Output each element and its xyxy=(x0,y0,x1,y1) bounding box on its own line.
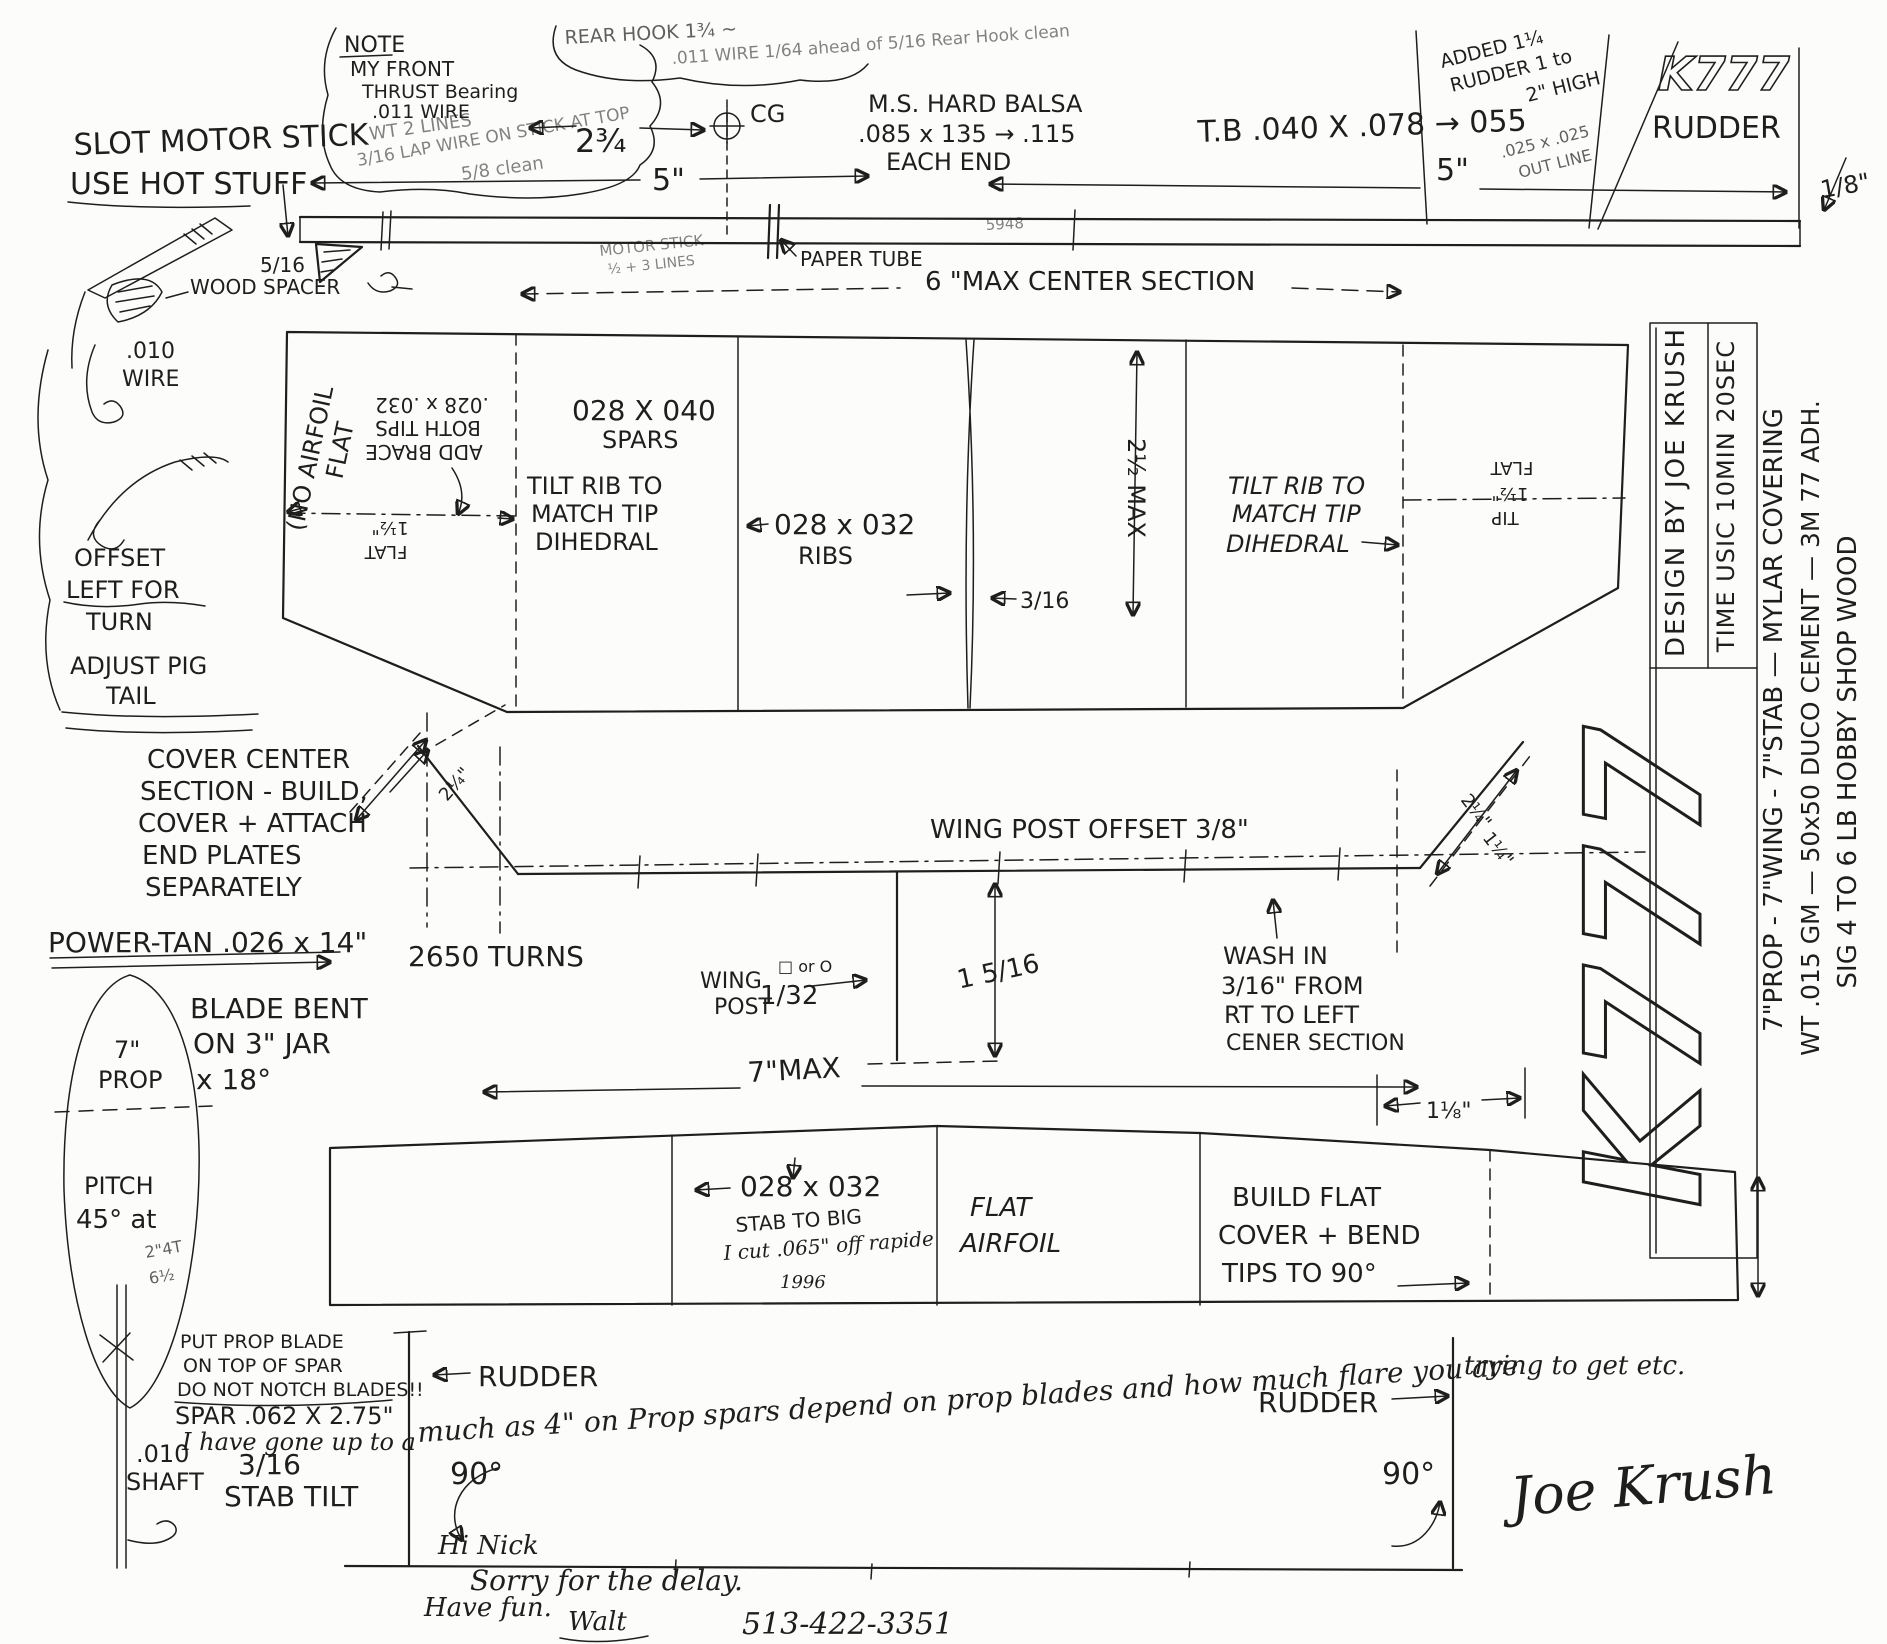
slot-note: SLOT MOTOR STICK xyxy=(73,118,370,163)
ninety-deg-label: 90° xyxy=(450,1457,503,1492)
ribs-arrow xyxy=(748,524,768,526)
footer-greeting: Hi Nick xyxy=(437,1531,539,1561)
dim-5in-right-b xyxy=(1480,189,1786,192)
span-label: 7"MAX xyxy=(747,1051,842,1089)
spars-spec: SPARS xyxy=(602,426,679,454)
max-center-label: 6 "MAX CENTER SECTION xyxy=(925,267,1255,297)
spec-line: WT .015 GM — 50x50 DUCO CEMENT — 3M 77 A… xyxy=(1796,400,1825,1056)
chord-label: 2½ MAX xyxy=(1122,438,1150,538)
ribs-spec: RIBS xyxy=(798,542,853,570)
adjust-underline xyxy=(62,712,258,733)
stick-mark: 5948 xyxy=(985,214,1024,234)
tailboom-spec: T.B .040 X .078 → 055 xyxy=(1196,104,1527,150)
rib-thk-arrow xyxy=(907,593,950,595)
stab-big-note: 1996 xyxy=(780,1272,826,1293)
gap-label: 1⅛" xyxy=(1426,1099,1471,1124)
cover-note: END PLATES xyxy=(142,841,302,871)
rib-thk-arrow xyxy=(992,598,1016,599)
left-tip-upturn xyxy=(418,746,518,874)
tilt-rib-note-right: MATCH TIP xyxy=(1232,500,1361,528)
cg-label: CG xyxy=(750,100,785,128)
note-line: THRUST Bearing xyxy=(361,81,518,103)
cover-arrow xyxy=(390,750,428,792)
spar-spec: SPAR .062 X 2.75" xyxy=(175,1402,394,1430)
dim-5in-right-label: 5" xyxy=(1436,153,1469,188)
tilt-rib-note: DIHEDRAL xyxy=(535,528,658,556)
gap-dim-a xyxy=(1385,1103,1420,1106)
stick-bottom-line xyxy=(300,242,1800,246)
spec-line: SIG 4 TO 6 LB HOBBY SHOP WOOD xyxy=(1833,536,1863,989)
dim-5in-left-b xyxy=(700,176,868,179)
bend-tips-arrow xyxy=(1398,1283,1468,1286)
wash-in-note: RT TO LEFT xyxy=(1224,1001,1359,1029)
plan-drawing: NOTE MY FRONT THRUST Bearing .011 WIRE W… xyxy=(0,0,1887,1644)
flat-airfoil-note: FLAT xyxy=(970,1193,1033,1223)
stab-outline xyxy=(330,1126,1738,1305)
wing-plan-view xyxy=(283,288,1628,712)
spec-line: 7"PROP - 7"WING - 7"STAB — MYLAR COVERIN… xyxy=(1759,408,1789,1032)
margin-squiggle xyxy=(38,350,60,710)
stab-tilt-label: STAB TILT xyxy=(224,1480,359,1513)
rear-hook-note: REAR HOOK 1¾ ~ xyxy=(564,18,738,49)
balsa-spec: M.S. HARD BALSA xyxy=(868,90,1083,118)
add-brace-note: BOTH TIPS xyxy=(375,416,481,440)
add-brace-note: ADD BRACE xyxy=(365,440,483,464)
slot-note: USE HOT STUFF xyxy=(70,167,307,202)
stab-size-spec: 028 x 032 xyxy=(740,1170,881,1203)
blade-note: ON 3" JAR xyxy=(193,1027,331,1060)
blade-note: x 18° xyxy=(196,1063,271,1096)
power-underline-2 xyxy=(52,962,330,968)
flat-airfoil-note: AIRFOIL xyxy=(958,1229,1061,1259)
wash-in-note: CENER SECTION xyxy=(1226,1031,1405,1056)
footer-message: Have fun. xyxy=(423,1593,552,1623)
tilted-rib xyxy=(966,340,974,708)
add-brace-note: .028 x .032 xyxy=(375,393,489,417)
rudder-title: RUDDER xyxy=(1652,111,1781,146)
pitch-note-small: 6½ xyxy=(147,1265,176,1288)
footer-signature: Walt xyxy=(568,1607,627,1637)
wing-post-shape: □ or O xyxy=(778,957,832,976)
max-center-dim-a xyxy=(522,288,900,294)
turns-spec: 2650 TURNS xyxy=(408,940,584,973)
brace-dim-label: 1¼" xyxy=(1478,828,1517,870)
brace-dim-label: 2¼" xyxy=(435,763,475,805)
brace-dim-label: 2¼" xyxy=(1456,790,1495,832)
shaft-spec: SHAFT xyxy=(126,1468,204,1496)
balsa-spec: .085 x 135 → .115 xyxy=(858,120,1076,148)
stab-size-arrow xyxy=(696,1188,730,1190)
ninety-deg-arc-right xyxy=(1392,1502,1440,1546)
sketch-curve xyxy=(72,292,85,368)
paper-tube-label: PAPER TUBE xyxy=(800,247,923,271)
wing-post-arrow xyxy=(812,980,866,986)
plan-sheet: NOTE MY FRONT THRUST Bearing .011 WIRE W… xyxy=(0,0,1887,1644)
cover-note: SECTION - BUILD, xyxy=(140,777,368,807)
build-flat-note: BUILD FLAT xyxy=(1232,1183,1381,1213)
ribs-spec: 028 x 032 xyxy=(774,508,915,541)
wire-label: WIRE xyxy=(122,367,179,392)
pigtail-hook-sketch xyxy=(88,457,228,549)
post-bottom-dash xyxy=(868,1061,1002,1064)
prop-blade-note: DO NOT NOTCH BLADES!! xyxy=(177,1379,424,1401)
post-cap xyxy=(394,1331,426,1333)
wing-post-offset-label: WING POST OFFSET 3/8" xyxy=(930,815,1249,845)
prop-blade-note: PUT PROP BLADE xyxy=(180,1331,344,1353)
note-title: NOTE xyxy=(344,33,405,58)
designer-credit: DESIGN BY JOE KRUSH xyxy=(1661,327,1691,657)
wing-post-label: WING xyxy=(700,969,762,994)
wire-label: .010 xyxy=(126,339,175,364)
cover-leader xyxy=(436,705,505,745)
plan-title: K777 xyxy=(1658,47,1790,101)
stick-top-line xyxy=(300,217,1800,221)
wood-spacer-sketch xyxy=(107,279,162,322)
right-tip-note: TIP xyxy=(1491,507,1519,528)
build-flat-note: TIPS TO 90° xyxy=(1221,1259,1377,1289)
wire-hook-sketch xyxy=(87,345,123,423)
prop-blade-note: ON TOP OF SPAR xyxy=(183,1355,343,1377)
adjust-note: TAIL xyxy=(105,682,156,710)
ninety-deg-label: 90° xyxy=(1382,1457,1435,1492)
tip-arrow xyxy=(498,518,513,519)
balsa-spec: EACH END xyxy=(886,148,1011,176)
cover-note: COVER CENTER xyxy=(147,745,350,775)
build-flat-note: COVER + BEND xyxy=(1218,1221,1421,1251)
tip-flat-dim: 1½" xyxy=(371,517,408,538)
shaft-hook xyxy=(128,1521,176,1543)
pitch-note-small: 2"4T xyxy=(143,1237,183,1262)
prop-shaft xyxy=(117,1285,126,1568)
offset-note: OFFSET xyxy=(74,544,165,572)
pitch-note: PITCH xyxy=(84,1172,154,1200)
gap-dim-b xyxy=(1482,1098,1520,1100)
rib-thickness: 3/16 xyxy=(1020,589,1069,614)
wash-in-note: 3/16" FROM xyxy=(1221,972,1364,1000)
cg-distance: 2¾ xyxy=(575,122,626,160)
right-tip-note: FLAT xyxy=(1490,457,1534,478)
cover-note: COVER + ATTACH xyxy=(138,809,367,839)
rudder-arrow-left xyxy=(434,1373,470,1375)
rudder-arrow-right xyxy=(1392,1396,1448,1399)
blade-note: BLADE BENT xyxy=(190,992,369,1025)
note-line: 5/8 clean xyxy=(460,153,545,185)
wing-post-size: 1/32 xyxy=(760,981,818,1011)
adjust-note: ADJUST PIG xyxy=(70,652,207,680)
dim-5in-left-label: 5" xyxy=(652,163,685,198)
dihedral-arrow xyxy=(1362,542,1398,545)
wing-outline xyxy=(283,332,1628,712)
prop-size: 7" xyxy=(114,1036,140,1064)
stab-plan-view xyxy=(330,1126,1758,1305)
spar-note-cursive: I have gone up to a xyxy=(181,1428,416,1456)
cover-note: SEPARATELY xyxy=(145,873,302,903)
max-center-dim-b xyxy=(1292,288,1400,292)
front-wing-line xyxy=(518,868,1420,874)
offset-note: LEFT FOR xyxy=(66,576,180,604)
span-dim-a xyxy=(484,1088,740,1092)
signature: Joe Krush xyxy=(1498,1443,1779,1530)
paper-tube-marks xyxy=(768,205,779,258)
note-line: MY FRONT xyxy=(350,57,455,81)
blade-chord-line xyxy=(55,1106,212,1112)
offset-note: TURN xyxy=(85,608,153,636)
wash-in-arrow xyxy=(1273,900,1277,938)
cg-dim-arrow-right xyxy=(640,128,704,130)
front-hook-loop xyxy=(368,273,412,292)
spacer-leader xyxy=(166,292,188,298)
hotstuff-underline xyxy=(68,202,250,207)
eighth-label: 1/8" xyxy=(1818,168,1872,204)
station-ticks xyxy=(638,848,1340,888)
right-tip-note: 1½" xyxy=(1491,483,1528,504)
span-dim-b xyxy=(862,1086,1417,1087)
clearance-label: 5/16 xyxy=(260,253,305,277)
tip-flat-dim: FLAT xyxy=(364,541,408,562)
hook-hatch xyxy=(180,453,216,470)
prop-spar-note-cursive: trying to get etc. xyxy=(1464,1351,1685,1381)
plan-title-large: K777 xyxy=(1551,718,1738,1208)
front-centerline xyxy=(410,852,1645,868)
spars-spec: 028 X 040 xyxy=(572,394,716,427)
pitch-note: 45° at xyxy=(76,1205,156,1235)
tilt-rib-note: MATCH TIP xyxy=(531,500,658,528)
power-spec: POWER-TAN .026 x 14" xyxy=(48,926,367,959)
dim-5in-right-a xyxy=(990,184,1420,188)
time-record: TIME USIC 10MIN 20SEC xyxy=(1712,340,1740,653)
phone-number: 513-422-3351 xyxy=(742,1607,953,1642)
rudder-label-left: RUDDER xyxy=(478,1360,598,1393)
tilt-rib-note-right: DIHEDRAL xyxy=(1226,530,1350,558)
prop-label: PROP xyxy=(98,1066,163,1094)
tilt-rib-note: TILT RIB TO xyxy=(526,472,663,500)
post-height-label: 1 5/16 xyxy=(955,949,1043,996)
wood-spacer-label: WOOD SPACER xyxy=(190,275,340,299)
left-tip-flat-line xyxy=(287,513,516,516)
wash-in-note: WASH IN xyxy=(1223,942,1328,970)
tilt-rib-note-right: TILT RIB TO xyxy=(1228,472,1365,500)
brace-pointer xyxy=(452,468,462,514)
